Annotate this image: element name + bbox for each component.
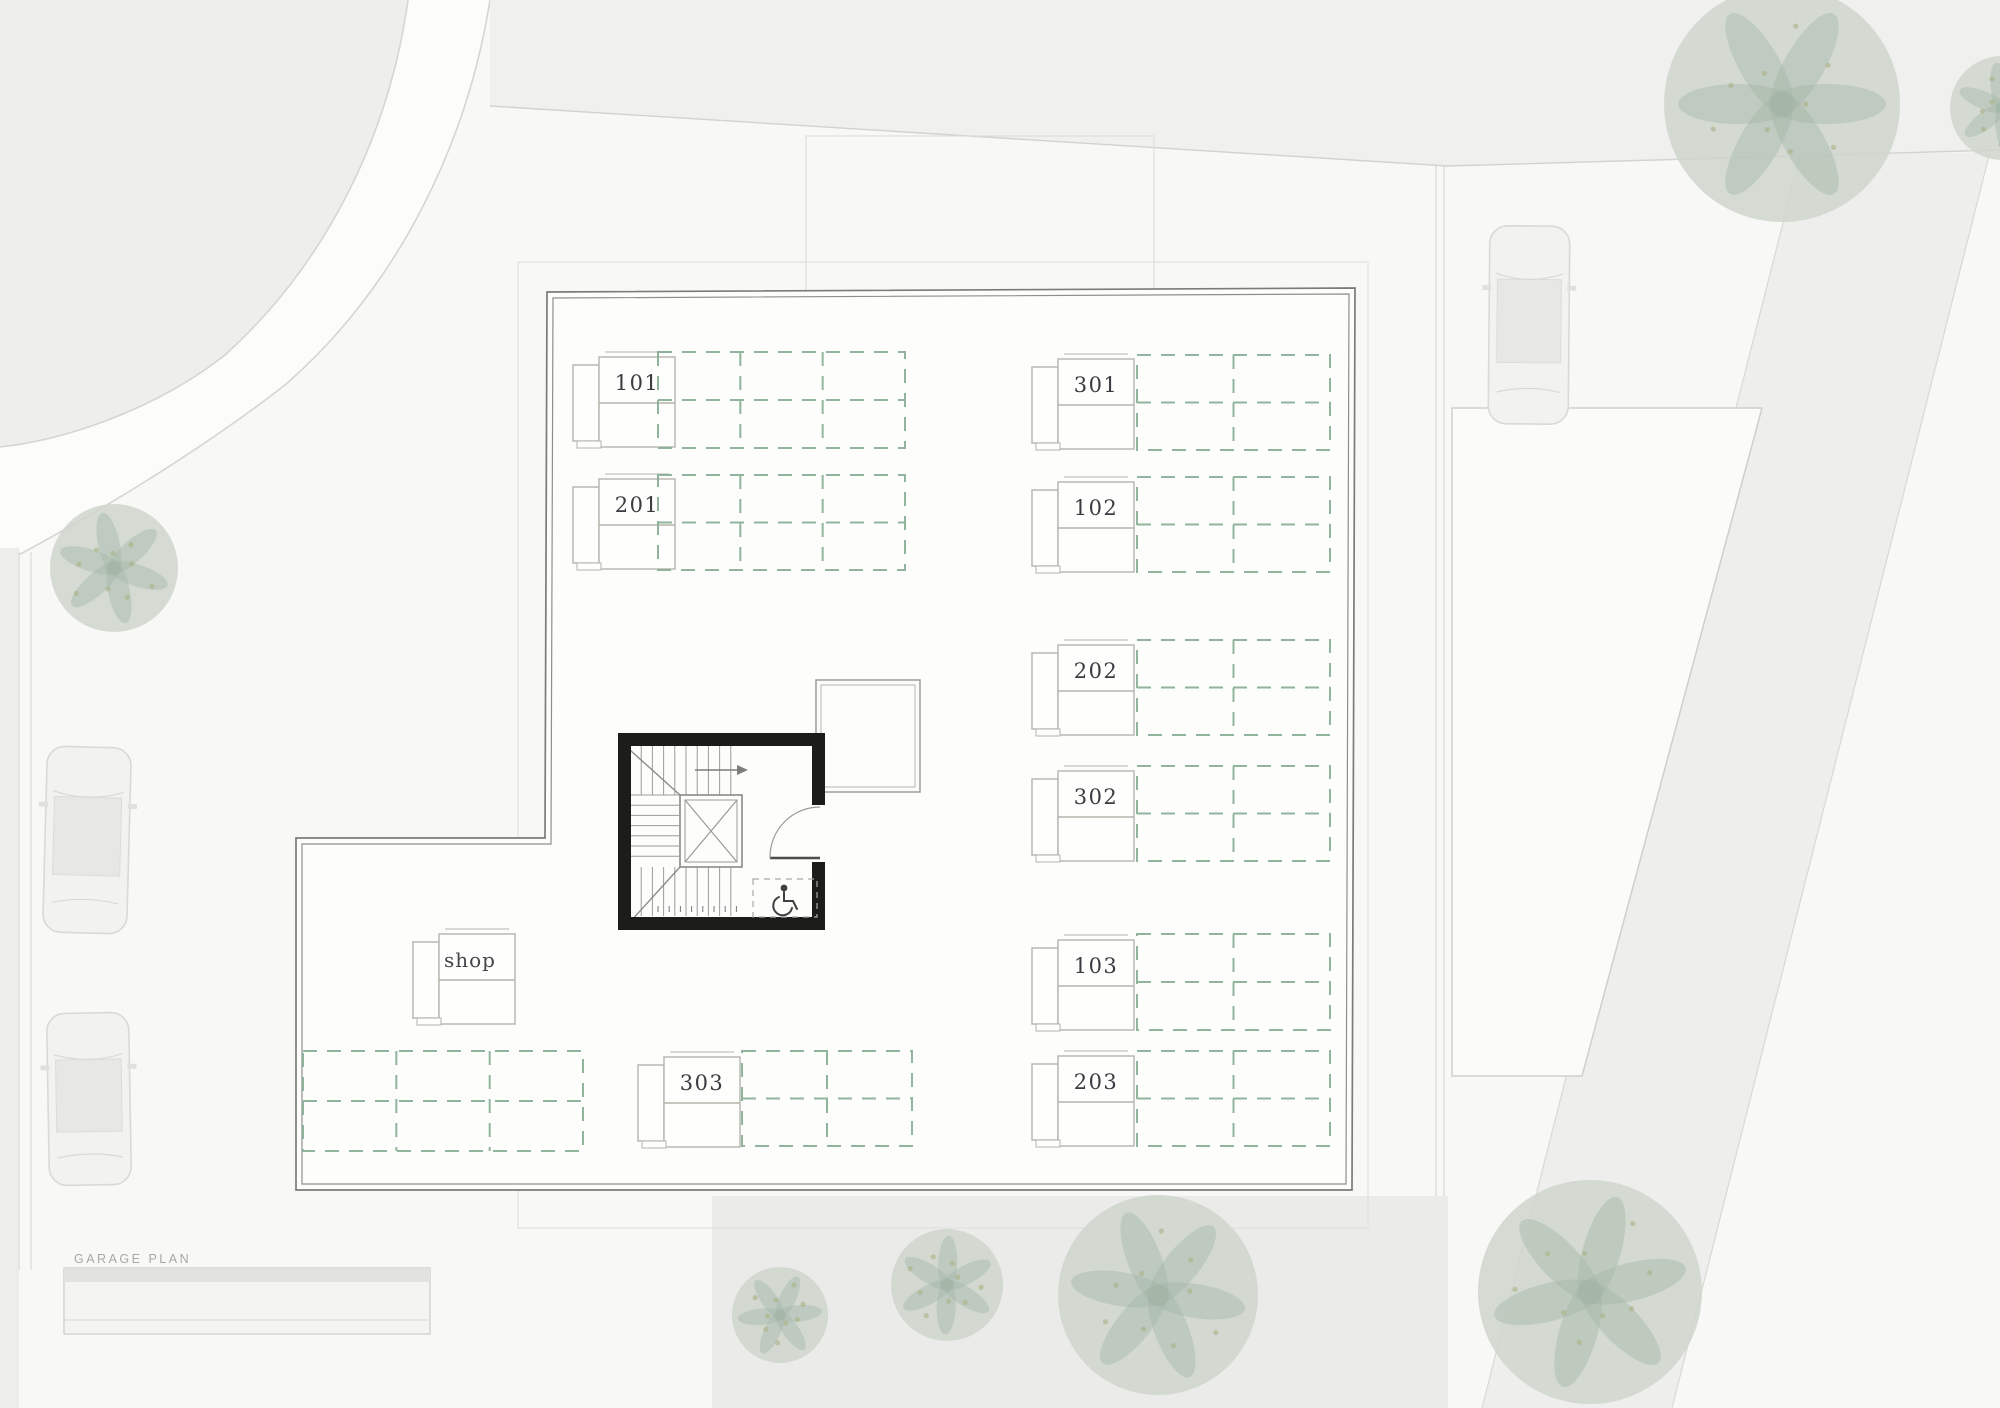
tree [732, 1267, 828, 1363]
stair-void [680, 795, 742, 867]
west-verge [0, 548, 19, 1408]
shaft-room [816, 680, 920, 792]
staircase-core [618, 733, 825, 930]
unit-box [1032, 1051, 1134, 1147]
unit-label-103: 103 [1074, 954, 1119, 978]
unit-box [1032, 766, 1134, 862]
tree [891, 1229, 1003, 1341]
tree [50, 504, 178, 632]
unit-label-202: 202 [1074, 659, 1119, 683]
unit-label-102: 102 [1074, 496, 1119, 520]
unit-label-203: 203 [1074, 1070, 1119, 1094]
unit-label-303: 303 [680, 1071, 725, 1095]
unit-box [1032, 477, 1134, 573]
car [40, 1012, 139, 1186]
garage-site-plan: GARAGE PLAN 101 201 301 102 202 302 103 … [0, 0, 2000, 1408]
unit-box [413, 929, 515, 1025]
tree [1058, 1195, 1258, 1395]
unit-box [1032, 935, 1134, 1031]
unit-box [1032, 354, 1134, 450]
car [36, 746, 139, 935]
car [1481, 226, 1577, 425]
plan-title: GARAGE PLAN [74, 1252, 191, 1266]
unit-label-201: 201 [615, 493, 660, 517]
unit-label-302: 302 [1074, 785, 1119, 809]
unit-label-101: 101 [615, 371, 660, 395]
tree [1478, 1180, 1702, 1404]
site-plan-canvas: GARAGE PLAN 101 201 301 102 202 302 103 … [0, 0, 2000, 1408]
unit-box [638, 1052, 740, 1148]
unit-label-shop: shop [444, 948, 496, 972]
boundary-wall-plan [64, 1268, 430, 1334]
unit-box [1032, 640, 1134, 736]
unit-label-301: 301 [1074, 373, 1119, 397]
